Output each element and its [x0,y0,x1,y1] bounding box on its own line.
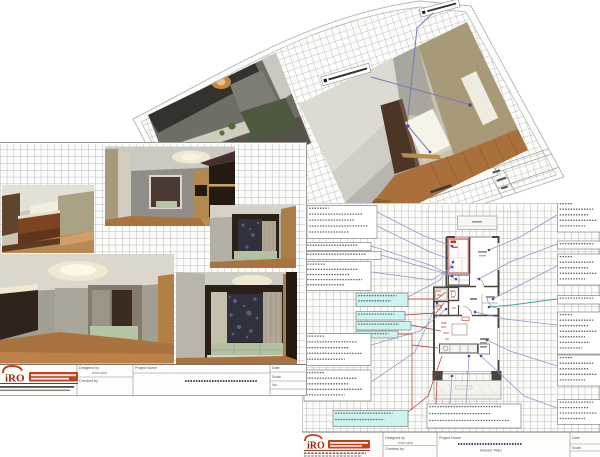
svg-text:tomi-naka: tomi-naka [398,441,413,445]
svg-text:iRO: iRO [307,441,325,452]
svg-text:Date: Date [572,436,580,440]
svg-text:Project Name: Project Name [439,436,461,440]
svg-text:Designed by: Designed by [79,366,99,370]
svg-text:Designed by: Designed by [385,436,405,440]
svg-text:tomi-naka: tomi-naka [92,371,107,375]
svg-text:Project Name: Project Name [135,366,157,370]
svg-text:Scale: Scale [572,446,581,450]
svg-text:iRO: iRO [5,373,25,385]
svg-text:Date: Date [272,366,280,370]
svg-text:Checked by: Checked by [79,379,98,383]
svg-text:Checked by: Checked by [385,447,404,451]
svg-text:Scale: Scale [272,375,281,379]
svg-text:No.: No. [272,383,278,387]
svg-text:Interior Plan: Interior Plan [480,448,502,453]
